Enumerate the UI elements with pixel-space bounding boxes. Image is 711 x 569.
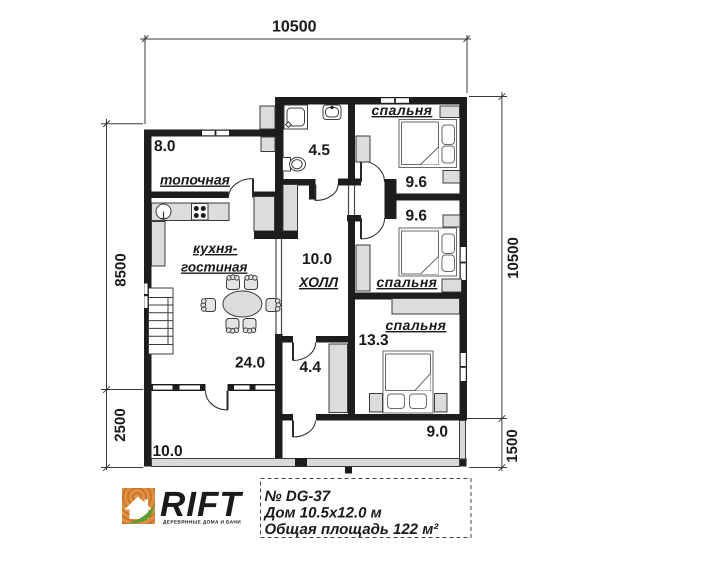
svg-text:гостиная: гостиная [181, 260, 248, 275]
svg-text:2500: 2500 [112, 408, 129, 441]
svg-text:8500: 8500 [112, 253, 129, 286]
svg-text:8.0: 8.0 [154, 138, 176, 155]
svg-text:Дом 10.5х12.0 м: Дом 10.5х12.0 м [263, 505, 382, 522]
svg-text:4.5: 4.5 [309, 142, 331, 159]
svg-text:кухня-: кухня- [193, 240, 238, 256]
svg-text:топочная: топочная [160, 172, 230, 188]
svg-text:спальня: спальня [386, 317, 447, 333]
svg-text:13.3: 13.3 [359, 332, 390, 349]
svg-text:ХОЛЛ: ХОЛЛ [298, 274, 338, 290]
svg-text:1500: 1500 [504, 429, 521, 462]
svg-text:ДЕРЕВЯННЫЕ ДОМА И БАНИ: ДЕРЕВЯННЫЕ ДОМА И БАНИ [163, 520, 241, 526]
svg-text:9.6: 9.6 [406, 174, 428, 191]
svg-text:9.0: 9.0 [427, 424, 449, 441]
svg-text:10.0: 10.0 [302, 251, 332, 268]
svg-text:9.6: 9.6 [406, 208, 428, 225]
svg-text:10500: 10500 [272, 19, 317, 36]
svg-text:10.0: 10.0 [153, 443, 183, 460]
svg-text:10500: 10500 [505, 237, 522, 279]
svg-text:24.0: 24.0 [235, 355, 265, 372]
svg-text:Общая площадь 122 м²: Общая площадь 122 м² [265, 521, 440, 538]
svg-text:спальня: спальня [372, 102, 433, 118]
svg-text:спальня: спальня [377, 274, 438, 290]
svg-text:4.4: 4.4 [300, 359, 322, 376]
svg-text:RIFT: RIFT [160, 485, 243, 524]
svg-text:№ DG-37: № DG-37 [265, 488, 331, 505]
